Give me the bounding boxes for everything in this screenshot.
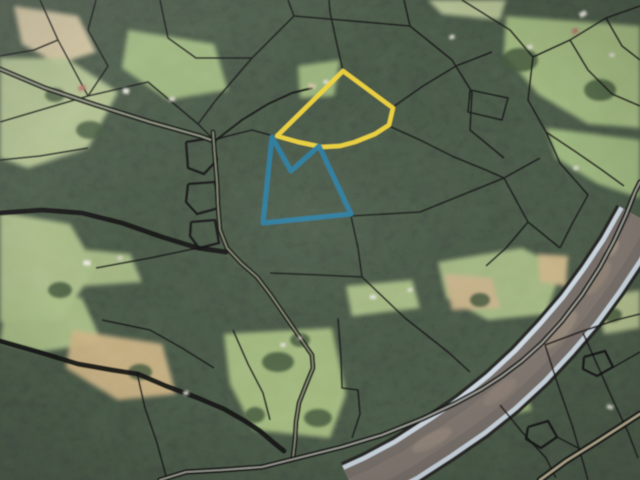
photo-sheen: [0, 0, 640, 480]
aerial-parcel-map[interactable]: [0, 0, 640, 480]
map-canvas: [0, 0, 640, 480]
